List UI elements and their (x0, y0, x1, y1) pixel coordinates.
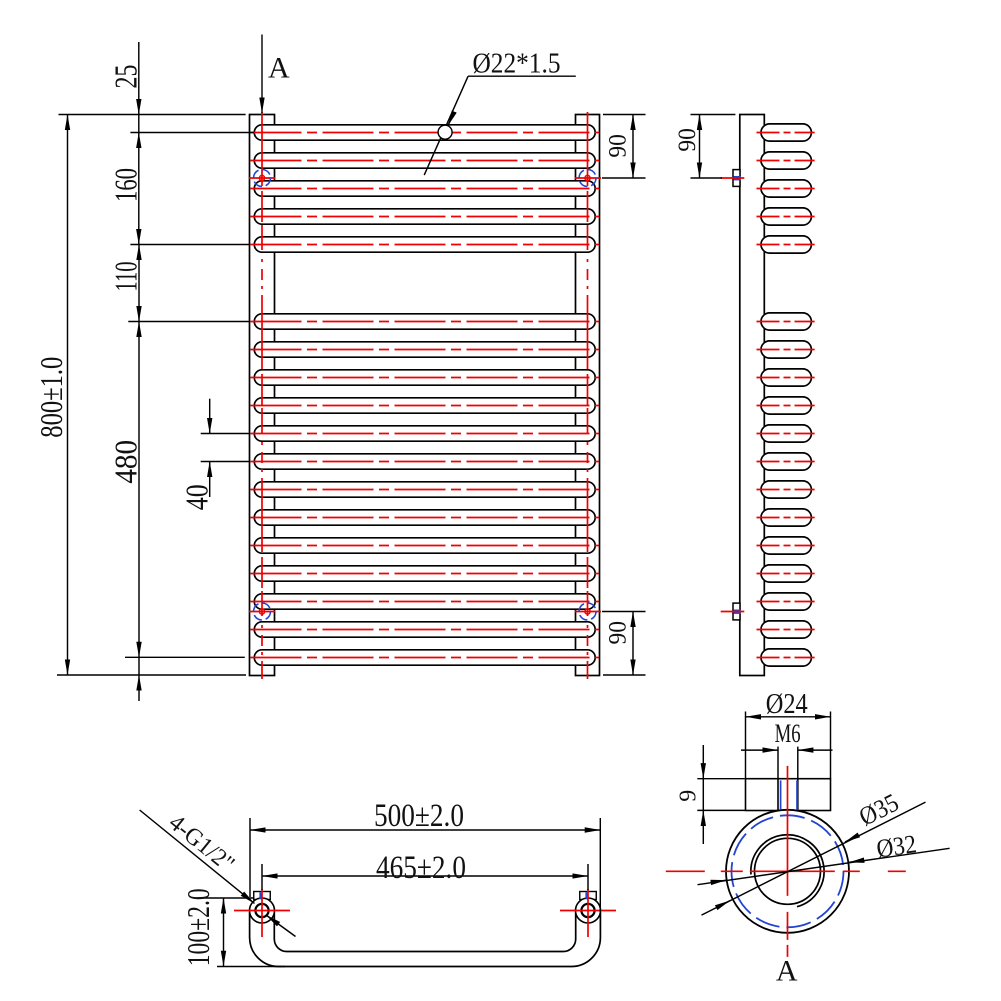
svg-text:90: 90 (674, 128, 701, 152)
svg-text:40: 40 (179, 484, 215, 510)
svg-text:90: 90 (604, 621, 631, 645)
svg-text:465±2.0: 465±2.0 (376, 850, 466, 886)
svg-text:110: 110 (108, 262, 144, 292)
svg-text:Ø22*1.5: Ø22*1.5 (473, 49, 561, 80)
svg-text:Ø24: Ø24 (766, 689, 808, 720)
svg-text:160: 160 (108, 168, 144, 202)
svg-text:Ø32: Ø32 (875, 829, 919, 863)
svg-text:800±1.0: 800±1.0 (33, 357, 69, 438)
svg-text:25: 25 (108, 65, 144, 89)
svg-text:480: 480 (108, 440, 144, 484)
svg-text:9: 9 (676, 790, 702, 802)
svg-text:100±2.0: 100±2.0 (180, 888, 216, 966)
svg-text:M6: M6 (775, 719, 801, 748)
svg-text:A: A (776, 954, 798, 987)
svg-text:A: A (268, 51, 290, 84)
svg-text:90: 90 (604, 134, 631, 158)
svg-text:500±2.0: 500±2.0 (374, 798, 464, 834)
